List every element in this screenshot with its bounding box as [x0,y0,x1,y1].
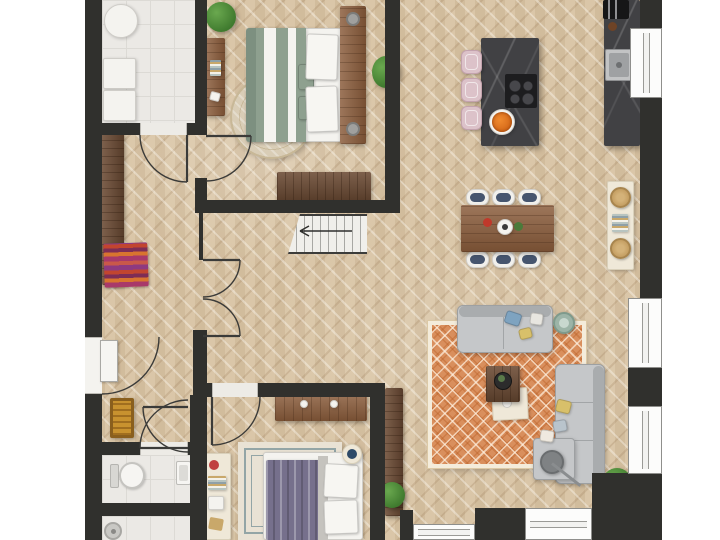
wall-bottom-post-2 [475,508,525,540]
bed2-pillow [323,463,359,499]
sofa-pillow-white [529,312,544,326]
wc-door-opening [140,442,188,455]
doormat [110,398,134,438]
washbasin-bowl [179,465,188,481]
shoe-shelf [103,242,149,288]
window-living-1 [628,298,662,368]
bed1-pillow [305,33,339,80]
wall-bedroom1-bottom [195,200,400,213]
window-kitchen [630,28,662,98]
sideboard-decor [612,214,628,232]
nightstand-vase [346,12,360,26]
coffee-grinder [608,22,617,31]
bed2-pillow [323,499,358,534]
wall-bedroom2-left [190,395,207,540]
sectional-backrest [593,366,604,482]
dining-chair [466,251,489,268]
front-door-leaf [100,340,118,382]
laundry-door-opening [140,123,187,135]
rattan-basket [610,187,631,208]
faucet [616,62,622,68]
wall-wc-shower [102,503,195,516]
staircase [288,214,367,254]
window-bottom-2 [525,508,592,540]
wall-right-bottom [628,472,662,512]
tray-plant [498,375,505,382]
wall-right-middle [640,96,662,300]
wall-bottom-post-1 [400,510,413,540]
shelf-shoes [208,496,224,510]
dining-chair [518,251,541,268]
wall-bedroom2-right [370,383,385,540]
rattan-basket [610,238,631,259]
toilet-tank [110,464,119,488]
wall-wc-top-right [188,442,195,455]
nightstand-vase [346,122,360,136]
wall-right-post [628,366,662,408]
shower-head-center [111,529,116,534]
shelf-books [208,476,226,490]
toilet [119,462,145,489]
dryer [103,90,136,121]
dresser2-decor [300,400,308,408]
wall-left-upper [85,0,102,337]
wall-right-top [640,0,662,30]
bedroom1-dresser [206,38,225,116]
dining-chair [492,251,515,268]
shelf-box [208,517,224,531]
side-table-decor [559,318,569,328]
bedroom1-wardrobe [277,172,371,202]
bar-stool [461,78,482,102]
nightstand-vase-navy [347,449,357,459]
espresso-machine [603,0,629,19]
wall-laundry-bottom [85,123,140,135]
dresser-decor [210,60,221,76]
bedroom2-door-opening [212,383,258,397]
table-plate-center [502,224,508,230]
bar-stool [461,106,482,130]
bar-stool [461,50,482,74]
window-bottom-1 [413,524,475,540]
bedroom2-dresser [275,394,367,421]
wall-laundry-bottom-right [187,123,207,135]
dining-chair [466,189,489,206]
bed1-duvet [246,28,306,142]
washing-machine [103,58,136,89]
sectional-pillow-gray [552,419,568,433]
wall-laundry-right [195,0,207,135]
dining-chair [518,189,541,206]
fruit-bowl [492,112,512,132]
wall-bedroom1-right [385,0,400,213]
sectional-pillow-white [539,429,555,443]
table-decor-red [483,218,492,227]
table-decor-green [514,222,523,231]
dresser2-decor [330,400,338,408]
wall-wc-top-left [102,442,140,455]
wall-left-lower [85,394,102,540]
shelf-decor-red [209,460,219,470]
floor-plan [0,0,720,540]
bed2-throw [266,460,320,540]
bed1-pillow [305,85,339,132]
dining-chair [492,189,515,206]
plant-bedroom1-icon [206,2,236,32]
partition-upper [199,213,203,260]
window-living-2 [628,406,662,474]
cooktop [505,74,537,108]
wall-bedroom2-top [258,383,385,397]
laundry-side-table [104,4,138,38]
